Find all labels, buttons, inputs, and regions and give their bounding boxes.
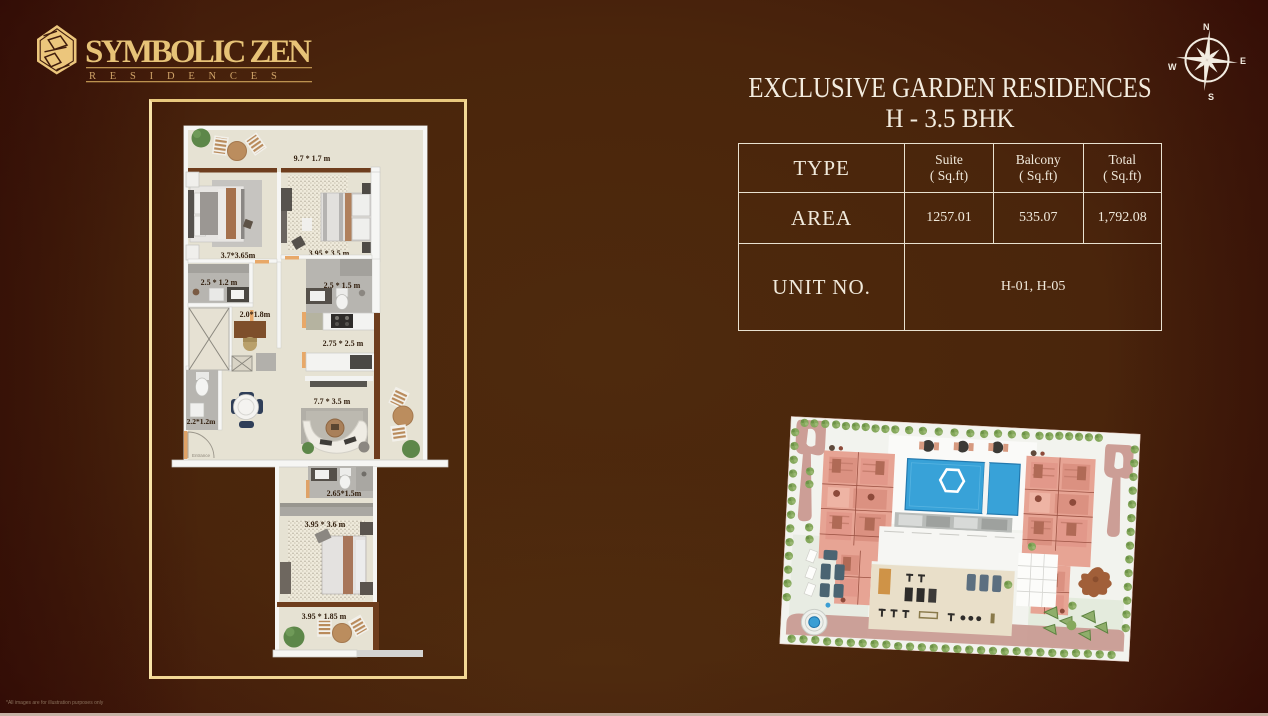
svg-text:SYMBOLIC ZEN: SYMBOLIC ZEN xyxy=(85,34,312,70)
svg-text:RESIDENCES: RESIDENCES xyxy=(89,71,291,82)
svg-text:2.75 * 2.5 m: 2.75 * 2.5 m xyxy=(323,339,364,348)
svg-text:2.5 * 1.5 m: 2.5 * 1.5 m xyxy=(324,281,361,290)
svg-text:S: S xyxy=(1208,92,1214,102)
svg-text:Entrance: Entrance xyxy=(192,453,211,458)
svg-text:7.7 * 3.5 m: 7.7 * 3.5 m xyxy=(314,397,351,406)
svg-text:E: E xyxy=(1240,56,1246,66)
svg-text:3.7*3.65m: 3.7*3.65m xyxy=(221,251,256,260)
svg-text:3.95 * 1.85 m: 3.95 * 1.85 m xyxy=(302,612,347,621)
svg-text:N: N xyxy=(1203,22,1210,32)
svg-text:2.2*1.2m: 2.2*1.2m xyxy=(187,417,217,426)
svg-text:W: W xyxy=(1168,62,1177,72)
svg-text:9.7 * 1.7 m: 9.7 * 1.7 m xyxy=(294,154,331,163)
svg-text:2.65*1.5m: 2.65*1.5m xyxy=(327,489,362,498)
svg-text:2.0*1.8m: 2.0*1.8m xyxy=(240,310,271,319)
svg-text:3.95 * 3.6 m: 3.95 * 3.6 m xyxy=(305,520,346,529)
svg-text:2.5 * 1.2 m: 2.5 * 1.2 m xyxy=(201,278,238,287)
